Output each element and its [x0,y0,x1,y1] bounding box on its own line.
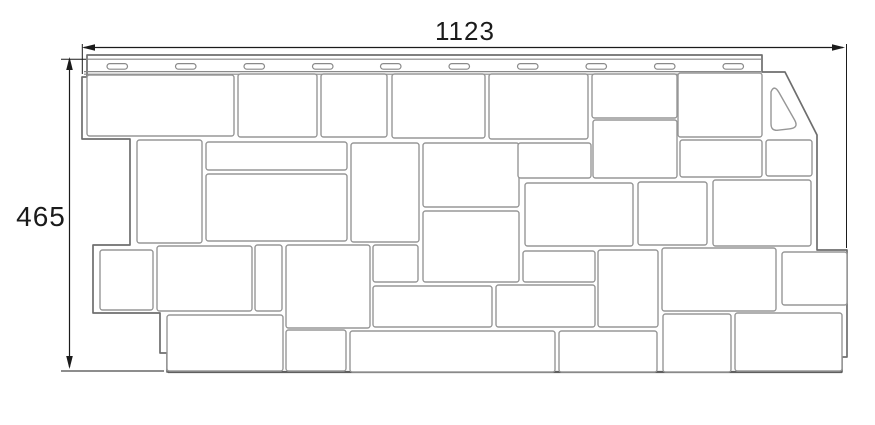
stone [373,245,418,282]
stone [678,73,762,137]
stone [321,74,387,137]
nail-slot [176,64,197,70]
stone [392,74,485,138]
panel-drawing-canvas: 1123 465 [0,0,875,425]
stone [206,174,347,241]
nail-slot [723,64,744,70]
nail-slot [107,64,128,70]
dimension-arrow-left [82,44,95,51]
nail-slot [586,64,607,70]
stone [350,331,555,372]
nail-slot [518,64,539,70]
stone [663,314,731,372]
nail-slot [313,64,334,70]
stone [680,140,762,177]
stone [373,286,492,327]
width-dimension-label: 1123 [435,16,495,46]
stone [100,250,153,310]
nail-slot [381,64,402,70]
stone [137,140,202,243]
stone [489,74,588,139]
stone [662,248,776,311]
facade-panel-diagram: 1123 465 [0,0,875,425]
stone [157,246,252,311]
stone [713,180,811,246]
stone [518,143,591,178]
stone [423,143,519,207]
stone [167,315,283,371]
stone [766,140,812,176]
stone [255,245,282,311]
dimension-arrow-down [66,356,73,369]
stone [593,120,677,178]
stone [592,74,677,118]
stone [559,331,657,372]
stone [286,330,346,371]
stone [87,75,234,136]
stone [598,250,658,327]
stone [638,182,707,245]
nail-slot [449,64,470,70]
nail-slot [244,64,265,70]
stone [523,251,595,282]
stone [206,142,347,170]
stone [238,74,317,137]
stone [525,183,633,246]
stone [496,285,595,327]
stone [351,143,419,242]
nail-slot [655,64,676,70]
stone [286,245,370,328]
stone [735,313,842,371]
stone [782,252,847,305]
stone [423,211,519,282]
height-dimension-label: 465 [16,201,66,232]
dimension-arrow-right [832,44,845,51]
